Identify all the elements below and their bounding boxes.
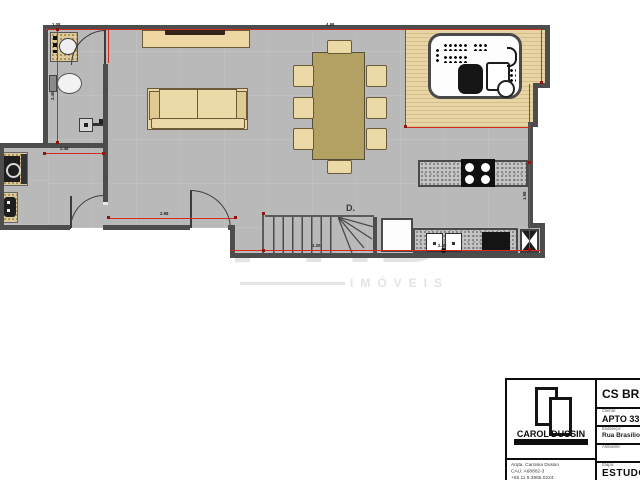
shower-drain-dot	[84, 123, 88, 127]
toilet-tank	[49, 75, 57, 92]
wall-recess-bottom	[230, 253, 545, 258]
dimension-tick	[540, 81, 543, 84]
door-leaf-service	[70, 196, 72, 228]
architect-credentials: Arqta. Carolina Dussin CAU: A68802-3 +55…	[507, 458, 595, 480]
hot-tub-headrest	[507, 47, 517, 67]
dimension-line	[405, 127, 530, 128]
stage-row: Etapa: ESTUDO	[597, 463, 640, 480]
project-name: CS BRA	[602, 380, 640, 401]
dimension-label: 1.98	[523, 192, 527, 200]
dimension-line	[541, 29, 542, 84]
stage-label: Etapa:	[602, 463, 640, 467]
dimension-tick	[102, 152, 105, 155]
floorplan-page: PHD IMÓVEIS	[0, 0, 640, 480]
client-label: Cliente:	[602, 409, 640, 413]
service-sink	[4, 197, 16, 217]
dimension-line	[43, 153, 105, 154]
stairs-label: D.	[346, 203, 355, 213]
tall-cabinet	[21, 154, 27, 184]
logo-tagline-bar	[514, 439, 588, 445]
shower-drain	[79, 118, 93, 132]
architect-phone: +55 11 9.3965.0224	[511, 475, 578, 480]
dimension-tick	[56, 28, 59, 31]
laundry-counter	[2, 152, 28, 186]
dining-chair	[293, 128, 314, 150]
dimension-label: 2.40	[51, 92, 55, 100]
wall-right-upper	[545, 25, 550, 88]
dimension-tick	[528, 248, 531, 251]
burner	[465, 175, 474, 184]
dimension-label: 2.48	[60, 147, 68, 151]
wall-corridor	[103, 148, 108, 204]
dining-chair	[366, 65, 387, 87]
wall-cap	[103, 202, 108, 205]
dimension-tick	[56, 141, 59, 144]
hot-tub-jets	[509, 68, 516, 82]
door-leaf-bathroom	[104, 30, 106, 64]
address-label: Endereço:	[602, 427, 640, 431]
stairs-stringer	[265, 215, 374, 217]
washer-door	[6, 163, 21, 178]
burner	[465, 163, 474, 172]
client-row: Cliente: APTO 33	[597, 409, 640, 427]
sofa-seat-front	[151, 118, 245, 129]
dining-chair	[327, 40, 352, 54]
dimension-tick	[43, 152, 46, 155]
dimension-label: 1.08	[52, 23, 60, 27]
stairs-winder	[338, 217, 374, 253]
dining-table	[312, 52, 365, 160]
washer	[4, 156, 20, 182]
wall-bathroom-left	[43, 25, 48, 148]
dimension-tick	[262, 212, 265, 215]
dimension-line	[405, 29, 406, 127]
dining-chair	[366, 128, 387, 150]
dimension-line	[57, 30, 58, 144]
dimension-label: 2.98	[160, 212, 168, 216]
wall-right-bottom	[540, 223, 545, 258]
dining-chair	[327, 160, 352, 174]
hot-tub-seat	[458, 64, 483, 94]
dining-chair	[293, 97, 314, 119]
dimension-line	[108, 30, 109, 63]
titleblock: CAROL DUSSIN Arqta. Carolina Dussin CAU:…	[505, 378, 640, 480]
dimension-line	[263, 213, 264, 253]
wall-recess-left	[230, 225, 235, 253]
dimension-line	[107, 218, 237, 219]
burner	[481, 163, 490, 172]
sofa-cushion	[159, 89, 199, 120]
dimension-tick	[528, 161, 531, 164]
watermark-underline	[240, 282, 345, 285]
stair-cabinet	[381, 218, 413, 252]
room-row: Ambiente:	[597, 445, 640, 463]
stage-value: ESTUDO	[602, 468, 640, 479]
wall-bathroom-bottom	[43, 143, 108, 148]
dimension-tick	[234, 216, 237, 219]
wall-bathroom-right	[103, 64, 108, 148]
dimension-tick	[107, 216, 110, 219]
client-value: APTO 33	[602, 414, 640, 424]
sink-drain-dot	[433, 242, 436, 245]
dimension-line	[230, 250, 541, 251]
project-row: CS BRA	[597, 380, 640, 409]
hot-tub	[428, 33, 522, 99]
wall-bottom-mid	[103, 225, 190, 230]
logo-cell: CAROL DUSSIN	[507, 380, 595, 458]
wall-right-mid	[533, 83, 538, 127]
dimension-tick	[404, 125, 407, 128]
service-sink-knob	[7, 201, 10, 204]
hot-tub-jets	[473, 43, 489, 51]
hot-tub-jets	[443, 43, 469, 51]
cooktop	[461, 159, 495, 187]
dimension-label: 1.20	[312, 244, 320, 248]
stairs-treads	[265, 217, 338, 253]
dining-chair	[293, 65, 314, 87]
burner	[481, 175, 490, 184]
sink-drain-dot	[452, 242, 455, 245]
dimension-line	[45, 29, 541, 30]
hot-tub-jets	[435, 48, 441, 64]
counter-appliance	[482, 232, 510, 251]
wall-service-bottom	[0, 225, 70, 230]
hot-tub-drain	[497, 80, 515, 98]
toilet-bowl	[57, 73, 82, 94]
dimension-label: 2.40	[438, 244, 446, 248]
wall-service-left	[0, 143, 4, 230]
address-value: Rua Brasílio M	[602, 432, 640, 439]
door-leaf-entry	[190, 190, 192, 228]
address-row: Endereço: Rua Brasílio M	[597, 427, 640, 445]
wall-service-top	[0, 143, 43, 148]
watermark-subtext: IMÓVEIS	[350, 276, 449, 290]
sofa	[147, 88, 248, 130]
room-label: Ambiente:	[602, 445, 640, 449]
dimension-line	[529, 84, 530, 251]
dimension-label: 4.98	[326, 23, 334, 27]
sofa-cushion	[197, 89, 237, 120]
service-sink-knob	[7, 209, 10, 212]
hot-tub-jets	[443, 55, 469, 63]
wall-stairs-right	[373, 217, 377, 253]
logo-name: CAROL DUSSIN	[507, 429, 595, 439]
dimension-tick	[262, 249, 265, 252]
service-counter	[2, 192, 18, 223]
dining-chair	[366, 97, 387, 119]
